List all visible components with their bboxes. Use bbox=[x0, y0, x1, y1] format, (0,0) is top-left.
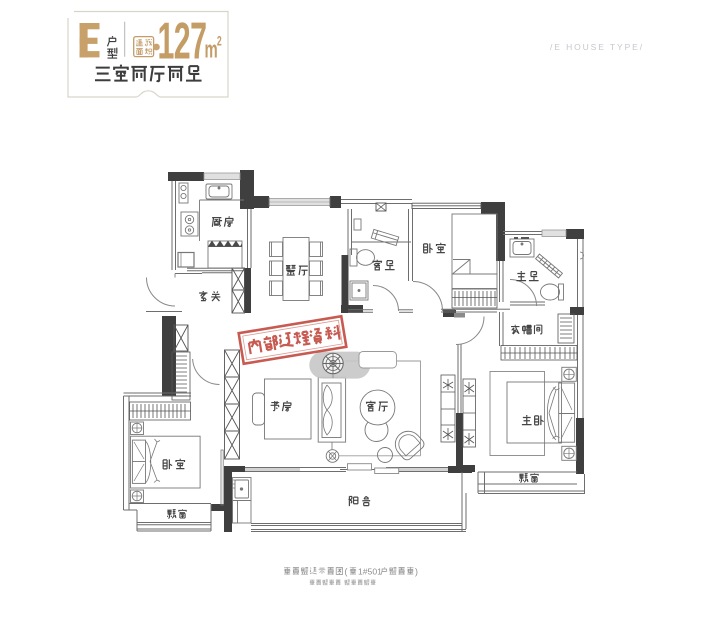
svg-text:): ) bbox=[415, 566, 418, 576]
svg-text:1#501: 1#501 bbox=[358, 566, 382, 576]
svg-text:m: m bbox=[205, 37, 218, 63]
svg-text:/E HOUSE TYPE/: /E HOUSE TYPE/ bbox=[550, 42, 644, 52]
svg-text:2: 2 bbox=[217, 33, 222, 49]
svg-text:127: 127 bbox=[158, 12, 207, 69]
svg-text:(: ( bbox=[345, 566, 348, 576]
